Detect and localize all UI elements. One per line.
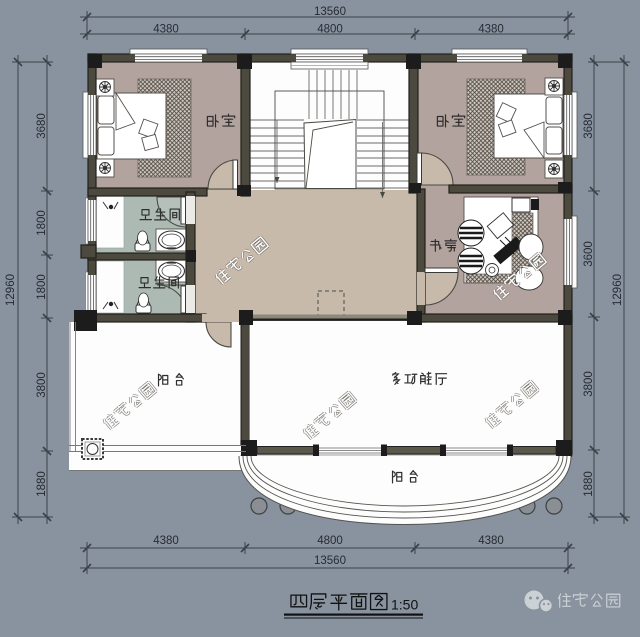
svg-text:1:50: 1:50 xyxy=(391,597,418,613)
svg-text:3680: 3680 xyxy=(36,113,48,139)
svg-text:4380: 4380 xyxy=(153,535,179,547)
svg-text:1800: 1800 xyxy=(36,274,48,300)
svg-text:13560: 13560 xyxy=(314,555,346,567)
svg-text:1880: 1880 xyxy=(583,471,595,497)
svg-text:1880: 1880 xyxy=(36,471,48,497)
svg-text:4380: 4380 xyxy=(478,24,504,36)
svg-text:13560: 13560 xyxy=(314,6,346,18)
svg-text:4800: 4800 xyxy=(317,535,343,547)
svg-text:1800: 1800 xyxy=(36,210,48,236)
svg-text:3800: 3800 xyxy=(36,372,48,398)
svg-text:3600: 3600 xyxy=(583,241,595,267)
svg-text:4380: 4380 xyxy=(153,24,179,36)
svg-text:3680: 3680 xyxy=(583,113,595,139)
svg-text:12960: 12960 xyxy=(5,274,17,306)
svg-text:4380: 4380 xyxy=(478,535,504,547)
svg-text:3800: 3800 xyxy=(583,371,595,397)
svg-text:12960: 12960 xyxy=(612,274,624,306)
svg-text:4800: 4800 xyxy=(317,24,343,36)
